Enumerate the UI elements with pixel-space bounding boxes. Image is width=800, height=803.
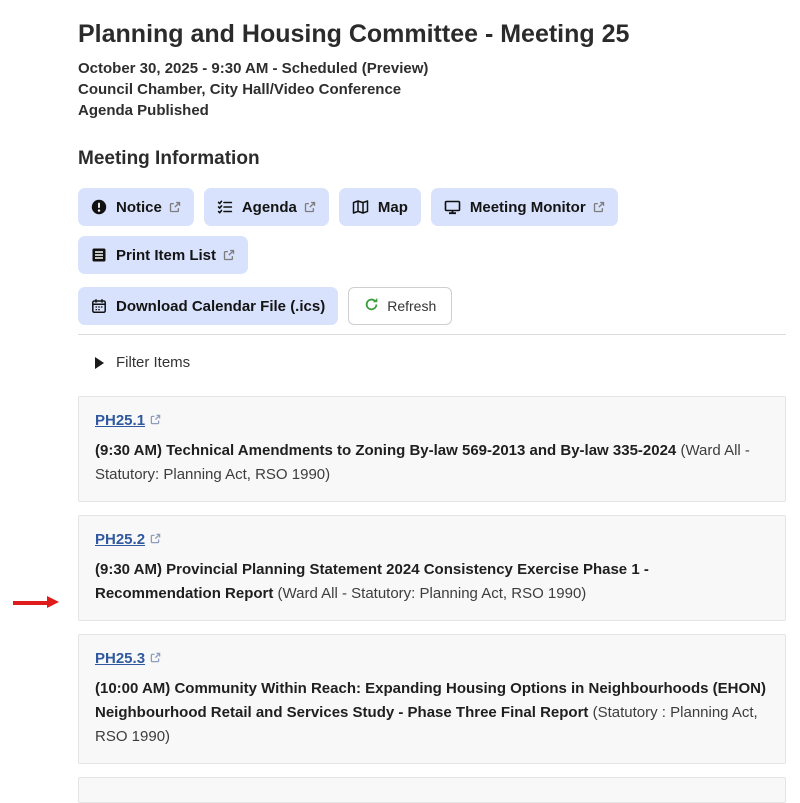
meeting-agenda-page: Planning and Housing Committee - Meeting… [0, 0, 800, 721]
red-arrow-shaft [13, 601, 48, 605]
external-link-icon [150, 412, 161, 429]
meeting-monitor-button-label: Meeting Monitor [470, 199, 586, 216]
agenda-item-card-ph25-2: PH25.2 (9:30 AM) Provincial Planning Sta… [78, 515, 786, 621]
item-description: (9:30 AM) Provincial Planning Statement … [95, 558, 769, 606]
exclamation-circle-icon [91, 199, 107, 215]
expand-triangle-icon [95, 357, 104, 369]
external-link-icon [593, 201, 605, 213]
calendar-icon [91, 298, 107, 314]
external-link-icon [169, 201, 181, 213]
red-arrow-annotation [13, 596, 59, 609]
agenda-item-card-partial [78, 777, 786, 803]
agenda-button-label: Agenda [242, 199, 297, 216]
agenda-button[interactable]: Agenda [204, 188, 329, 226]
refresh-button-label: Refresh [387, 298, 436, 314]
external-link-icon [150, 650, 161, 667]
external-link-icon [150, 531, 161, 548]
item-id: PH25.2 [95, 531, 145, 548]
filter-items-toggle[interactable]: Filter Items [78, 354, 190, 371]
toolbar-row-2: Download Calendar File (.ics) Refresh [78, 287, 786, 325]
agenda-item-list: PH25.1 (9:30 AM) Technical Amendments to… [78, 396, 786, 803]
item-id: PH25.1 [95, 412, 145, 429]
notice-button[interactable]: Notice [78, 188, 194, 226]
agenda-item-card-ph25-3: PH25.3 (10:00 AM) Community Within Reach… [78, 634, 786, 764]
item-link-ph25-1[interactable]: PH25.1 [95, 412, 161, 429]
item-link-ph25-2[interactable]: PH25.2 [95, 531, 161, 548]
external-link-icon [304, 201, 316, 213]
checklist-icon [217, 199, 233, 215]
download-calendar-button-label: Download Calendar File (.ics) [116, 298, 325, 315]
meeting-monitor-button[interactable]: Meeting Monitor [431, 188, 618, 226]
item-description: (9:30 AM) Technical Amendments to Zoning… [95, 439, 769, 487]
refresh-icon [364, 297, 379, 315]
item-description: (10:00 AM) Community Within Reach: Expan… [95, 677, 769, 749]
item-title: (9:30 AM) Technical Amendments to Zoning… [95, 442, 676, 459]
toolbar-row-1: Notice Agenda Map Meeting Monitor [78, 188, 786, 274]
download-calendar-button[interactable]: Download Calendar File (.ics) [78, 287, 338, 325]
list-document-icon [91, 247, 107, 263]
refresh-button[interactable]: Refresh [348, 287, 452, 325]
filter-items-label: Filter Items [116, 354, 190, 371]
map-icon [352, 199, 369, 215]
divider [78, 334, 786, 335]
meeting-location: Council Chamber, City Hall/Video Confere… [78, 79, 786, 100]
item-id: PH25.3 [95, 650, 145, 667]
agenda-item-card-ph25-1: PH25.1 (9:30 AM) Technical Amendments to… [78, 396, 786, 502]
map-button-label: Map [378, 199, 408, 216]
item-link-row: PH25.2 [95, 531, 769, 549]
item-link-row: PH25.3 [95, 650, 769, 668]
agenda-status: Agenda Published [78, 100, 786, 121]
external-link-icon [223, 249, 235, 261]
meeting-information-heading: Meeting Information [78, 148, 786, 170]
red-arrow-head [47, 596, 59, 608]
item-link-row: PH25.1 [95, 412, 769, 430]
notice-button-label: Notice [116, 199, 162, 216]
page-title: Planning and Housing Committee - Meeting… [78, 20, 786, 49]
print-item-list-button[interactable]: Print Item List [78, 236, 248, 274]
map-button[interactable]: Map [339, 188, 421, 226]
monitor-icon [444, 199, 461, 215]
meeting-datetime-status: October 30, 2025 - 9:30 AM - Scheduled (… [78, 58, 786, 79]
print-item-list-button-label: Print Item List [116, 247, 216, 264]
item-link-ph25-3[interactable]: PH25.3 [95, 650, 161, 667]
item-meta: (Ward All - Statutory: Planning Act, RSO… [278, 585, 587, 602]
